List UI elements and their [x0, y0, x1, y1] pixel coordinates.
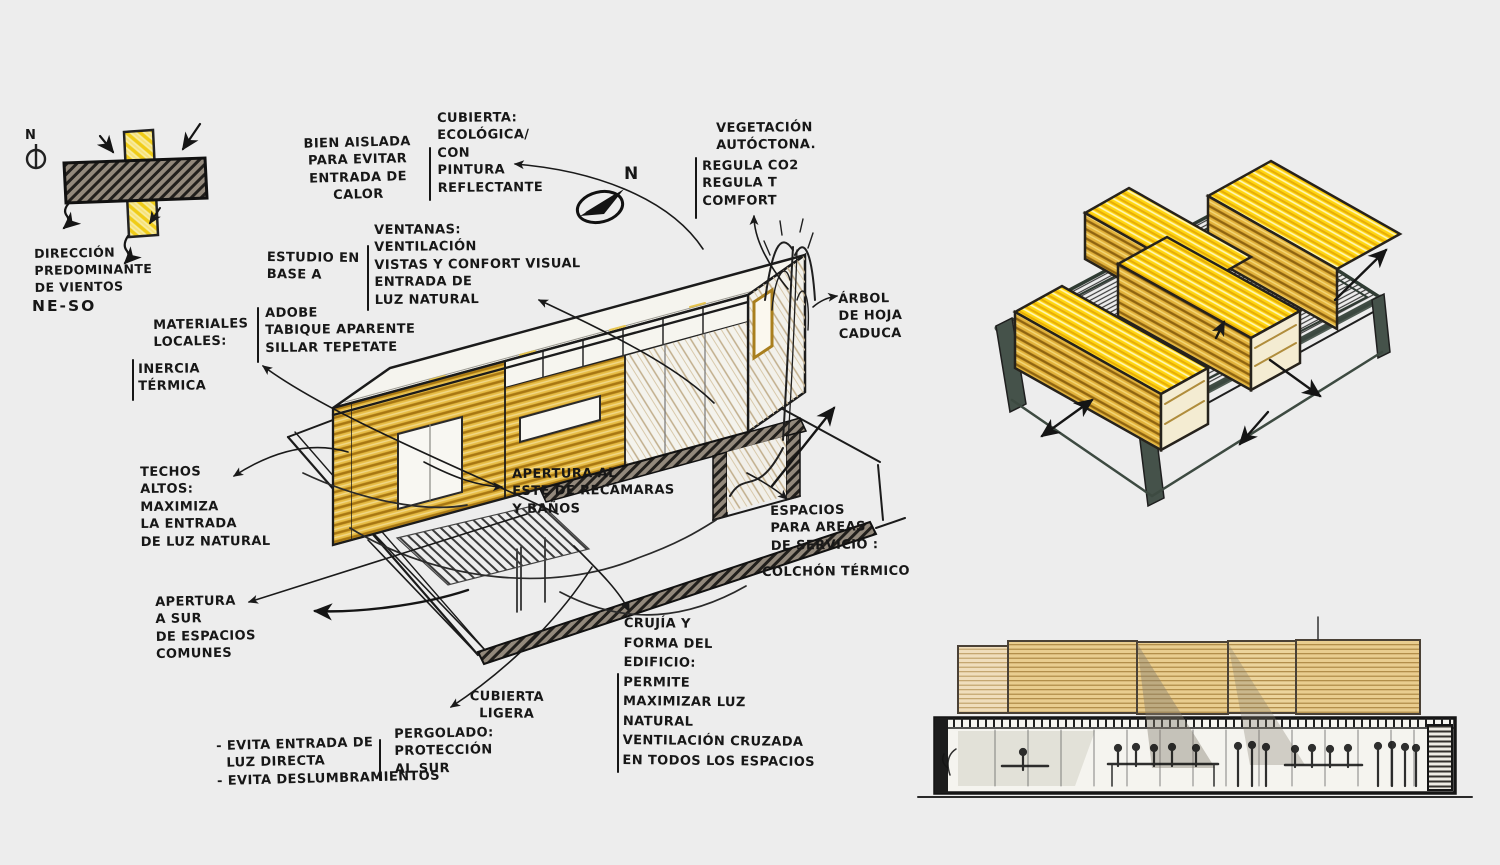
label-arbol: ÁRBOL DE HOJA CADUCA	[838, 290, 903, 343]
label-bien-aislada: BIEN AISLADA PARA EVITAR ENTRADA DE CALO…	[292, 133, 424, 206]
label-ventanas: VENTANAS: VENTILACIÓN VISTAS Y CONFORT V…	[374, 220, 581, 309]
label-estudio: ESTUDIO EN BASE A	[267, 249, 360, 285]
label-apertura-este: APERTURA AL ESTE DE RECÁMARAS Y BAÑOS	[512, 465, 675, 519]
section-left-post	[935, 718, 948, 793]
label-inercia: INERCIA TÉRMICA	[138, 360, 206, 395]
arrow-sw-double-icon	[1042, 400, 1092, 436]
label-apertura-sur: APERTURA A SUR DE ESPACIOS COMUNES	[155, 592, 256, 663]
wind-arrow-in-right-icon	[183, 124, 200, 149]
adobe-panels	[958, 617, 1420, 714]
wind-arrow-out-left-icon	[64, 202, 70, 228]
architecture-sketch-canvas: N DIRECCIÓN PREDOMINANTE DE VIENTOS NE-S…	[0, 0, 1500, 865]
label-cubierta-ecologica: CUBIERTA: ECOLÓGICA/ CON PINTURA REFLECT…	[437, 109, 543, 197]
label-vegetacion: VEGETACIÓN AUTÓCTONA.	[716, 119, 816, 155]
label-colchon-termico: COLCHÓN TÉRMICO	[762, 563, 910, 582]
glass-wash	[958, 731, 1095, 786]
massing-sketch	[996, 161, 1400, 506]
wind-diagram	[64, 124, 207, 263]
end-window	[754, 290, 772, 358]
label-materiales-lista: ADOBE TABIQUE APARENTE SILLAR TEPETATE	[265, 304, 416, 358]
joist-band	[940, 718, 1452, 727]
label-crujia: CRUJÍA Y FORMA DEL EDIFICIO: PERMITE MAX…	[622, 614, 816, 772]
wind-dark-bar	[64, 158, 207, 203]
label-cubierta-ligera: CUBIERTA LIGERA	[462, 688, 552, 724]
compass-icon	[27, 144, 45, 168]
arrow-s-icon	[1240, 412, 1268, 444]
section-right-core	[1428, 725, 1452, 790]
section-sketch	[918, 617, 1472, 797]
label-vegetacion-lista: REGULA CO2 REGULA T COMFORT	[702, 157, 799, 210]
compass-n-label: N	[25, 127, 36, 144]
wind-arrow-in-left-icon	[100, 136, 113, 152]
label-techos: TECHOS ALTOS: MAXIMIZA LA ENTRADA DE LUZ…	[140, 463, 271, 551]
label-materiales: MATERIALES LOCALES:	[153, 315, 249, 351]
label-espacios-servicio: ESPACIOS PARA AREAS DE SERVICIO :	[770, 501, 879, 555]
north-label: N	[624, 163, 639, 186]
adobe-corner-band	[333, 403, 352, 545]
label-wind-range: NE-SO	[32, 296, 96, 317]
table-leg-right	[1372, 294, 1390, 358]
label-wind-direction: DIRECCIÓN PREDOMINANTE DE VIENTOS	[34, 244, 153, 296]
label-evita: - EVITA ENTRADA DE LUZ DIRECTA - EVITA D…	[216, 733, 440, 791]
north-arrow-icon	[574, 187, 626, 227]
